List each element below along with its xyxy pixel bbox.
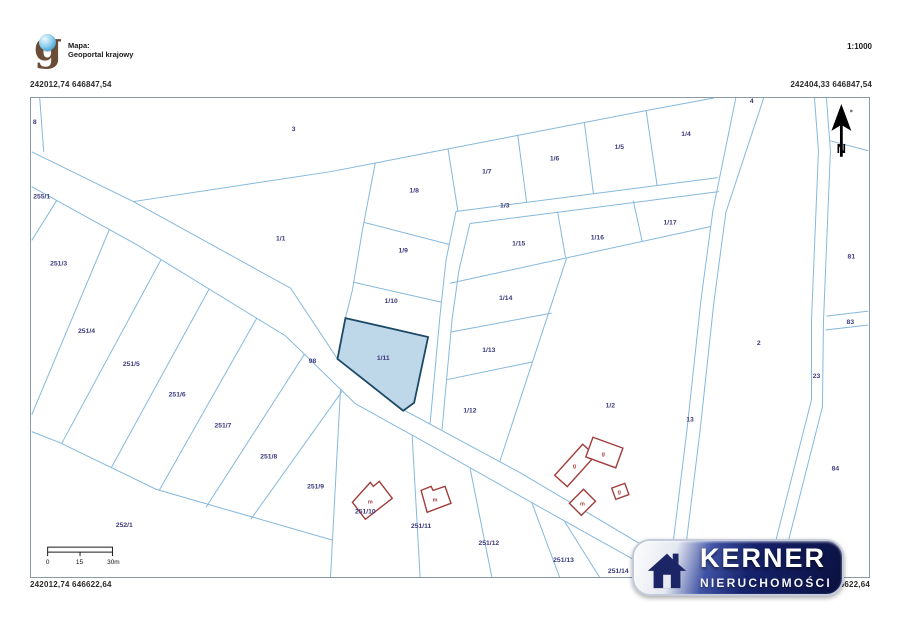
house-icon (644, 547, 690, 591)
parcel-boundary (364, 222, 449, 244)
parcel-label: 23 (813, 373, 821, 380)
parcel-boundary (771, 98, 819, 577)
building-label: g (573, 463, 576, 469)
parcel-boundary (646, 111, 657, 186)
parcel-label: 251/13 (553, 557, 574, 564)
coordinate-top-left: 242012,74 646847,54 (30, 80, 112, 89)
parcel-label: 251/11 (411, 523, 432, 530)
parcel-boundary (111, 289, 209, 467)
north-label: N (837, 141, 846, 156)
parcel-boundary (451, 313, 552, 332)
parcel-boundary (442, 223, 470, 429)
parcel-label: 1/14 (499, 295, 512, 302)
parcel-label: 84 (832, 465, 840, 472)
map-source-label: Mapa: (68, 41, 133, 50)
parcel-label: 8 (33, 119, 37, 126)
parcel-label: 1/12 (463, 408, 476, 415)
parcel-label: 255/1 (33, 194, 50, 201)
scale-bar-label-0: 0 (46, 559, 50, 566)
building-label: m (368, 499, 373, 505)
north-arrow-degree-dot (850, 110, 853, 113)
parcel-boundary (565, 521, 600, 577)
parcel-label: 1/3 (500, 203, 510, 210)
parcel-label: 98 (309, 358, 317, 365)
parcel-boundary (133, 98, 714, 202)
parcel-boundary (669, 98, 736, 577)
parcel-label: 251/12 (478, 540, 499, 547)
parcel-boundary (500, 258, 567, 461)
parcel-boundary (159, 318, 257, 490)
parcel-label: 1/16 (591, 234, 604, 241)
parcel-boundary (532, 502, 560, 577)
parcel-boundary (682, 98, 764, 577)
parcel-label: 1/7 (482, 169, 492, 176)
parcel-label: 13 (686, 417, 694, 424)
parcel-label: 1/8 (409, 188, 419, 195)
kerner-brand: KERNER (700, 543, 826, 574)
parcel-label: 251/9 (307, 483, 324, 490)
parcel-label: 1/13 (482, 347, 495, 354)
parcel-label: 81 (848, 253, 856, 260)
coordinate-bottom-left: 242012,74 646622,64 (30, 580, 112, 589)
parcel-boundary (450, 226, 711, 283)
coordinate-top-right: 242404,33 646847,54 (790, 80, 872, 89)
scale-bar: 0 15 30m (46, 547, 120, 566)
parcel-boundary (470, 467, 492, 577)
parcel-label: 1/6 (550, 156, 560, 163)
parcel-boundary (206, 354, 305, 507)
parcel-boundary (32, 229, 110, 414)
parcel-label: 251/5 (123, 361, 140, 368)
parcel-boundary (32, 201, 57, 241)
map-source-name: Geoportal krajowy (68, 50, 133, 59)
parcel-label: 1/2 (606, 403, 616, 410)
parcel-boundary (40, 98, 44, 152)
parcel-boundary (345, 163, 375, 318)
parcel-boundary (518, 135, 527, 203)
building-label: m (433, 497, 438, 503)
scale-bar-body (48, 547, 113, 552)
parcel-label: 251/14 (608, 568, 629, 575)
parcel-boundary (32, 432, 333, 541)
globe-icon (39, 34, 56, 51)
parcel-boundary (412, 436, 420, 577)
parcel-label: 3 (292, 126, 296, 133)
north-arrow: N (831, 104, 852, 157)
map-scale-label: 1:1000 (847, 42, 872, 51)
building-label: g (618, 489, 621, 495)
parcel-label: 1/1 (276, 235, 286, 242)
parcel-boundary (32, 187, 647, 567)
parcel-boundary (584, 123, 593, 194)
parcel-label: 251/7 (214, 423, 231, 430)
parcel-label: 1/9 (398, 247, 408, 254)
parcel-label: 251/8 (260, 453, 277, 460)
highlighted-parcel-1-11[interactable] (337, 318, 428, 411)
parcel-label: 1/17 (663, 219, 676, 226)
parcel-boundary (781, 98, 831, 577)
scale-bar-label-30m: 30m (107, 559, 120, 566)
map-canvas[interactable]: 83255/11/1251/3251/4251/5251/6251/7251/8… (30, 97, 870, 578)
building-label: g (602, 452, 605, 458)
parcel-label: 251/6 (169, 392, 186, 399)
parcel-label: 4 (750, 98, 754, 105)
parcel-label: 1/15 (512, 240, 525, 247)
geoportal-logo: g (34, 31, 70, 81)
kerner-subtitle: NIERUCHOMOŚCI (700, 576, 832, 590)
parcel-label: 251/3 (50, 260, 67, 267)
parcel-boundary (826, 311, 868, 316)
parcel-svg: 83255/11/1251/3251/4251/5251/6251/7251/8… (31, 98, 869, 577)
buildings (352, 437, 628, 519)
parcel-label: 251/10 (355, 508, 376, 515)
parcel-boundary (558, 212, 566, 258)
parcel-boundary (446, 362, 533, 380)
building-label: m (580, 501, 585, 507)
parcel-boundaries (32, 98, 869, 577)
parcel-label: 251/4 (78, 328, 95, 335)
parcel-label: 1/5 (615, 144, 625, 151)
parcel-boundary (448, 149, 458, 212)
parcel-boundary (456, 178, 718, 212)
parcel-boundary (330, 390, 340, 577)
parcel-label: 1/11 (377, 355, 390, 362)
kerner-watermark: KERNER NIERUCHOMOŚCI (632, 539, 844, 596)
parcel-label: 1/10 (385, 298, 398, 305)
map-source: Mapa: Geoportal krajowy (68, 41, 133, 59)
parcel-label: 1/4 (681, 131, 691, 138)
parcel-label: 2 (757, 340, 761, 347)
scale-bar-label-15: 15 (76, 559, 84, 566)
parcel-boundary (633, 201, 642, 242)
geoportal-map-page: g Mapa: Geoportal krajowy 1:1000 242012,… (0, 0, 900, 636)
parcel-boundary (62, 259, 162, 443)
parcel-label: 252/1 (116, 522, 133, 529)
parcel-label: 83 (847, 319, 855, 326)
